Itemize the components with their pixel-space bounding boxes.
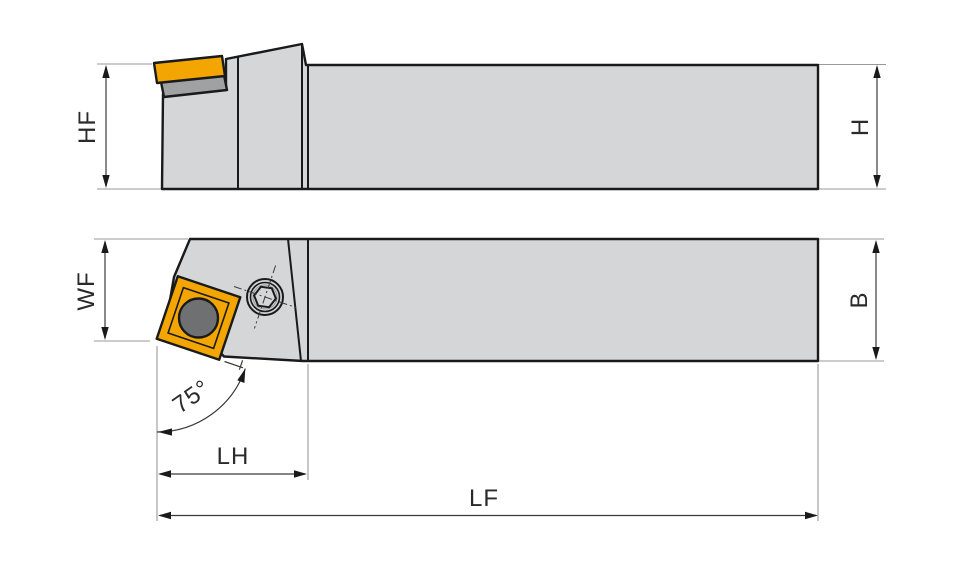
label-lead-angle: 75°: [168, 375, 216, 420]
lh-arrow-right: [294, 470, 307, 477]
toolholder-plan-body: [170, 239, 818, 361]
angle-arrow-upper: [237, 369, 245, 383]
dimension-wf: WF: [73, 240, 109, 340]
dimension-h: H: [847, 65, 881, 188]
label-lh: LH: [217, 443, 250, 470]
technical-drawing-page: HF H: [0, 0, 960, 568]
label-h: H: [847, 118, 874, 136]
wf-arrow-down: [101, 327, 108, 340]
h-arrow-down: [873, 175, 880, 188]
dimension-lh: LH: [158, 443, 307, 478]
hf-arrow-up: [102, 65, 109, 78]
lf-arrow-left: [158, 512, 171, 519]
angle-arrow-left: [158, 428, 172, 435]
wf-arrow-up: [101, 240, 108, 253]
label-lf: LF: [469, 485, 499, 512]
h-arrow-up: [873, 65, 880, 78]
lf-arrow-right: [805, 512, 818, 519]
label-b: B: [846, 291, 873, 308]
side-view: HF H: [74, 44, 886, 189]
lh-arrow-left: [158, 470, 171, 477]
b-arrow-down: [872, 347, 879, 360]
dimension-b: B: [846, 240, 880, 360]
toolholder-drawing: HF H: [0, 0, 960, 568]
b-arrow-up: [872, 240, 879, 253]
lead-angle-annotation: 75°: [157, 360, 245, 435]
dimension-lf: LF: [158, 485, 818, 519]
angle-witness-tick: [239, 360, 242, 369]
dimension-hf: HF: [74, 65, 110, 188]
toolholder-side-body: [162, 44, 818, 189]
plan-view: WF B 75° LH LF: [73, 239, 884, 521]
insert-center-hole: [179, 299, 218, 338]
hf-arrow-down: [102, 175, 109, 188]
label-hf: HF: [74, 110, 101, 144]
label-wf: WF: [73, 271, 100, 310]
